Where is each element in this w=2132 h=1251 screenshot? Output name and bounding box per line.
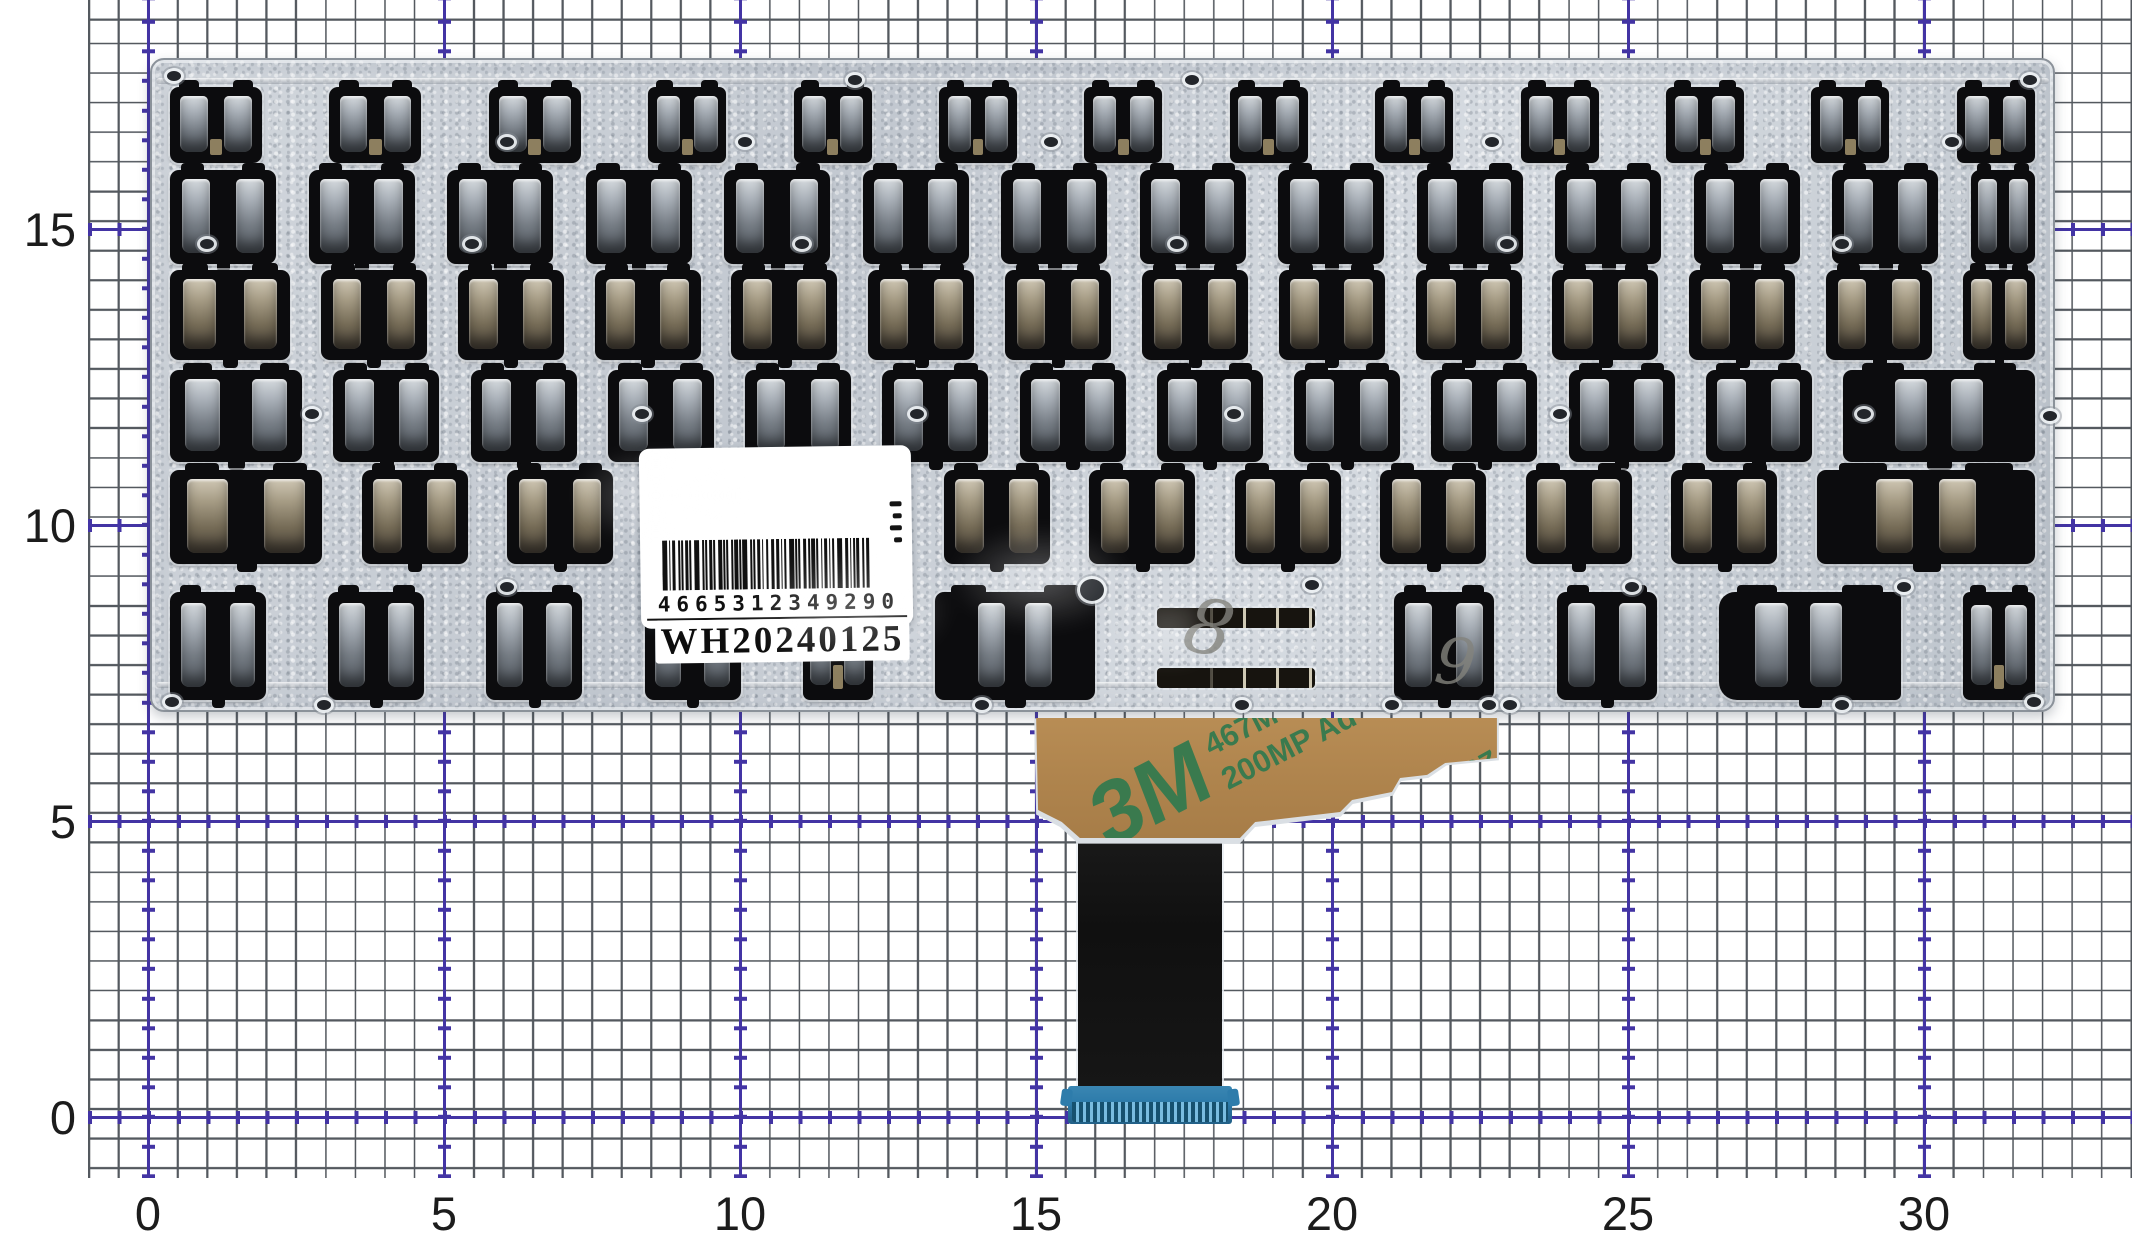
switch-clip bbox=[536, 379, 565, 451]
barcode-bar bbox=[714, 540, 716, 590]
screw-hole bbox=[500, 137, 514, 147]
screw-hole bbox=[795, 239, 809, 249]
switch-clip bbox=[597, 179, 626, 252]
key-switch-cutout bbox=[1001, 170, 1107, 264]
key-switch-cutout bbox=[1089, 470, 1195, 564]
label-side-mark bbox=[890, 525, 902, 530]
barcode-bar bbox=[672, 540, 676, 590]
switch-clip bbox=[985, 96, 1008, 152]
barcode-bar bbox=[694, 540, 700, 590]
barcode-bar bbox=[803, 539, 807, 589]
switch-notch bbox=[529, 695, 541, 708]
key-switch-cutout bbox=[328, 592, 424, 700]
key-switch-cutout bbox=[1084, 87, 1162, 163]
key-switch-cutout bbox=[731, 270, 837, 360]
switch-clip bbox=[1071, 279, 1100, 349]
switch-clip bbox=[497, 603, 523, 687]
switch-clip bbox=[660, 279, 689, 349]
switch-clip bbox=[802, 96, 825, 152]
key-switch-cutout bbox=[1666, 87, 1744, 163]
barcode-bar bbox=[734, 540, 738, 590]
key-switch-cutout bbox=[1694, 170, 1800, 264]
key-switch-cutout bbox=[794, 87, 872, 163]
switch-clip bbox=[339, 603, 365, 687]
switch-clip bbox=[1392, 479, 1421, 552]
switch-notch bbox=[370, 695, 382, 708]
key-row bbox=[170, 270, 2035, 360]
label-side-mark bbox=[894, 537, 902, 542]
key-switch-cutout bbox=[939, 87, 1017, 163]
screw-hole bbox=[1044, 137, 1058, 147]
switch-clip bbox=[236, 179, 265, 252]
switch-clip bbox=[736, 179, 765, 252]
switch-clip bbox=[1344, 279, 1373, 349]
switch-clip bbox=[373, 479, 402, 552]
x-axis-tick-label: 15 bbox=[991, 1186, 1081, 1241]
screw-hole bbox=[1185, 75, 1199, 85]
key-switch-cutout bbox=[863, 170, 969, 264]
switch-clip bbox=[427, 479, 456, 552]
barcode-bar bbox=[837, 538, 843, 588]
switch-notch bbox=[408, 559, 422, 572]
switch-clip bbox=[519, 479, 548, 552]
key-switch-cutout bbox=[1552, 270, 1658, 360]
switch-notch bbox=[1136, 559, 1150, 572]
keyboard-backplate bbox=[150, 58, 2055, 712]
x-axis-tick-label: 25 bbox=[1583, 1186, 1673, 1241]
key-switch-cutout bbox=[1719, 592, 1901, 700]
key-switch-cutout bbox=[309, 170, 415, 264]
key-switch-cutout bbox=[944, 470, 1050, 564]
key-switch-cutout bbox=[1235, 470, 1341, 564]
switch-clip bbox=[543, 96, 571, 152]
switch-notch bbox=[528, 139, 541, 156]
key-switch-cutout bbox=[1971, 170, 2035, 264]
barcode-bar bbox=[776, 539, 780, 589]
switch-clip bbox=[1238, 96, 1261, 152]
barcode-bar bbox=[669, 540, 671, 590]
key-switch-cutout bbox=[1526, 470, 1632, 564]
switch-clip bbox=[1580, 379, 1609, 451]
switch-clip bbox=[1567, 179, 1596, 252]
switch-clip bbox=[1755, 279, 1784, 349]
key-switch-cutout bbox=[1278, 170, 1384, 264]
switch-clip bbox=[1446, 479, 1475, 552]
switch-notch bbox=[1601, 695, 1614, 708]
switch-clip bbox=[1427, 279, 1456, 349]
key-switch-cutout bbox=[333, 370, 439, 462]
barcode-bar bbox=[731, 540, 733, 590]
switch-clip bbox=[757, 379, 786, 451]
switch-clip bbox=[1276, 96, 1299, 152]
screw-hole bbox=[167, 71, 181, 81]
switch-notch bbox=[1572, 559, 1586, 572]
switch-clip bbox=[1971, 279, 1993, 349]
key-switch-cutout bbox=[724, 170, 830, 264]
switch-notch bbox=[1052, 355, 1066, 368]
switch-clip bbox=[1384, 96, 1407, 152]
switch-clip bbox=[1592, 479, 1621, 552]
screw-hole bbox=[1227, 409, 1241, 419]
key-switch-cutout bbox=[362, 470, 468, 564]
switch-clip bbox=[1895, 379, 1928, 451]
serial-number: WH20240125 bbox=[649, 617, 916, 664]
switch-notch bbox=[237, 559, 257, 572]
x-axis-tick-label: 10 bbox=[695, 1186, 785, 1241]
switch-clip bbox=[955, 479, 984, 552]
barcode-bar bbox=[705, 540, 707, 590]
barcode-bar bbox=[723, 540, 725, 590]
screw-hole bbox=[200, 239, 214, 249]
switch-notch bbox=[641, 355, 655, 368]
product-photo-scene: 051015202530051015 8 9 3M 467M 200MP Ad … bbox=[0, 0, 2132, 1251]
key-switch-cutout bbox=[1826, 270, 1932, 360]
switch-clip bbox=[546, 603, 572, 687]
switch-clip bbox=[928, 179, 957, 252]
screw-hole bbox=[305, 409, 319, 419]
switch-notch bbox=[1994, 665, 2004, 689]
key-switch-cutout bbox=[170, 270, 290, 360]
label-side-mark bbox=[893, 513, 902, 518]
switch-clip bbox=[694, 96, 717, 152]
key-switch-cutout bbox=[1963, 270, 2035, 360]
switch-notch bbox=[915, 355, 929, 368]
switch-clip bbox=[1025, 603, 1052, 687]
switch-notch bbox=[682, 139, 693, 156]
switch-clip bbox=[1717, 379, 1746, 451]
switch-notch bbox=[1066, 457, 1080, 470]
x-axis-tick-label: 30 bbox=[1879, 1186, 1969, 1241]
switch-clip bbox=[2009, 179, 2028, 252]
screw-hole bbox=[1945, 137, 1959, 147]
switch-clip bbox=[1205, 179, 1234, 252]
switch-clip bbox=[1155, 479, 1184, 552]
key-switch-cutout bbox=[1375, 87, 1453, 163]
barcode-bar bbox=[845, 538, 849, 588]
switch-clip bbox=[874, 179, 903, 252]
barcode-bar bbox=[789, 539, 795, 589]
y-axis-tick-label: 10 bbox=[6, 498, 76, 553]
screw-hole bbox=[1170, 239, 1184, 249]
switch-clip bbox=[651, 179, 680, 252]
switch-notch bbox=[1718, 559, 1732, 572]
screw-hole bbox=[1482, 700, 1496, 710]
screw-hole bbox=[1835, 239, 1849, 249]
key-switch-cutout bbox=[648, 87, 726, 163]
barcode-bar bbox=[726, 540, 728, 590]
switch-clip bbox=[1701, 279, 1730, 349]
key-switch-cutout bbox=[329, 87, 421, 163]
barcode-bar bbox=[816, 538, 818, 588]
switch-notch bbox=[367, 355, 381, 368]
barcode-label: 4665312349290 WH20240125 bbox=[639, 445, 913, 629]
barcode-bar bbox=[754, 539, 756, 589]
key-switch-cutout bbox=[1817, 470, 2035, 564]
switch-clip bbox=[880, 279, 909, 349]
y-axis-tick-label: 5 bbox=[6, 794, 76, 849]
switch-clip bbox=[523, 279, 552, 349]
switch-notch bbox=[1700, 139, 1711, 156]
switch-clip bbox=[1892, 279, 1921, 349]
barcode-bar bbox=[829, 538, 831, 588]
switch-notch bbox=[1409, 139, 1420, 156]
switch-clip bbox=[1443, 379, 1472, 451]
switch-clip bbox=[978, 603, 1005, 687]
barcode-bar bbox=[821, 538, 823, 588]
switch-clip bbox=[1978, 179, 1997, 252]
key-switch-cutout bbox=[595, 270, 701, 360]
switch-clip bbox=[183, 279, 215, 349]
key-switch-cutout bbox=[1416, 270, 1522, 360]
switch-clip bbox=[1838, 279, 1867, 349]
barcode-bar bbox=[681, 540, 683, 590]
ribbon-cable bbox=[1078, 820, 1222, 1092]
switch-clip bbox=[1737, 479, 1766, 552]
screw-hole bbox=[2023, 75, 2037, 85]
key-switch-cutout bbox=[586, 170, 692, 264]
switch-notch bbox=[369, 139, 382, 156]
key-row bbox=[170, 170, 2035, 264]
barcode-bar bbox=[718, 540, 722, 590]
screw-hole bbox=[975, 700, 989, 710]
switch-clip bbox=[320, 179, 349, 252]
switch-clip bbox=[2005, 605, 2027, 685]
key-switch-cutout bbox=[1521, 87, 1599, 163]
switch-clip bbox=[1300, 479, 1329, 552]
switch-notch bbox=[1845, 139, 1856, 156]
switch-notch bbox=[687, 695, 699, 708]
switch-clip bbox=[1619, 603, 1646, 687]
switch-clip bbox=[1405, 603, 1432, 687]
switch-notch bbox=[833, 665, 843, 689]
switch-clip bbox=[840, 96, 863, 152]
screw-hole bbox=[165, 697, 179, 707]
switch-clip bbox=[230, 603, 256, 687]
switch-clip bbox=[1712, 96, 1735, 152]
barcode-bar bbox=[832, 538, 834, 588]
key-switch-cutout bbox=[1417, 170, 1523, 264]
key-row bbox=[170, 370, 2035, 462]
barcode-number: 4665312349290 bbox=[655, 589, 903, 616]
switch-notch bbox=[212, 695, 224, 708]
switch-notch bbox=[1203, 457, 1217, 470]
barcode-bar bbox=[771, 539, 775, 589]
key-row bbox=[170, 87, 2035, 163]
switch-clip bbox=[797, 279, 826, 349]
switch-clip bbox=[1755, 603, 1788, 687]
switch-notch bbox=[554, 559, 568, 572]
switch-clip bbox=[2003, 96, 2026, 152]
switch-clip bbox=[606, 279, 635, 349]
key-switch-cutout bbox=[1555, 170, 1661, 264]
switch-clip bbox=[1771, 379, 1800, 451]
key-switch-cutout bbox=[447, 170, 553, 264]
switch-clip bbox=[1130, 96, 1153, 152]
key-switch-cutout bbox=[1832, 170, 1938, 264]
barcode-bar bbox=[811, 538, 815, 588]
switch-clip bbox=[482, 379, 511, 451]
switch-clip bbox=[573, 479, 602, 552]
switch-clip bbox=[244, 279, 276, 349]
switch-clip bbox=[1537, 479, 1566, 552]
cable-connector bbox=[1068, 1086, 1232, 1124]
key-switch-cutout bbox=[1140, 170, 1246, 264]
key-switch-cutout bbox=[507, 470, 613, 564]
switch-clip bbox=[180, 96, 208, 152]
key-switch-cutout bbox=[489, 87, 581, 163]
switch-clip bbox=[1481, 279, 1510, 349]
switch-clip bbox=[1013, 179, 1042, 252]
barcode-bar bbox=[798, 539, 800, 589]
switch-clip bbox=[181, 603, 207, 687]
switch-notch bbox=[1118, 139, 1129, 156]
x-axis-tick-label: 20 bbox=[1287, 1186, 1377, 1241]
switch-notch bbox=[929, 457, 943, 470]
switch-clip bbox=[1939, 479, 1976, 552]
barcode-bar bbox=[824, 538, 828, 588]
screw-hole bbox=[317, 700, 331, 710]
screw-hole bbox=[1385, 700, 1399, 710]
switch-clip bbox=[1009, 479, 1038, 552]
switch-notch bbox=[1913, 559, 1941, 572]
switch-clip bbox=[333, 279, 362, 349]
key-row bbox=[170, 470, 2035, 564]
switch-clip bbox=[387, 279, 416, 349]
screw-hole bbox=[635, 409, 649, 419]
barcode-bar bbox=[750, 539, 752, 589]
barcode-bar bbox=[766, 539, 768, 589]
switch-clip bbox=[388, 603, 414, 687]
switch-clip bbox=[1567, 96, 1590, 152]
connector-contacts bbox=[1072, 1102, 1228, 1122]
switch-clip bbox=[374, 179, 403, 252]
switch-notch bbox=[827, 139, 838, 156]
switch-clip bbox=[1085, 379, 1114, 451]
switch-clip bbox=[1421, 96, 1444, 152]
switch-clip bbox=[340, 96, 368, 152]
screw-hole bbox=[1305, 580, 1319, 590]
switch-clip bbox=[657, 96, 680, 152]
screw-hole bbox=[1857, 409, 1871, 419]
switch-notch bbox=[1427, 559, 1441, 572]
switch-clip bbox=[811, 379, 840, 451]
screw-hole bbox=[1485, 137, 1499, 147]
switch-clip bbox=[934, 279, 963, 349]
switch-clip bbox=[1876, 479, 1913, 552]
screw-hole bbox=[1500, 239, 1514, 249]
x-axis-tick-label: 5 bbox=[399, 1186, 489, 1241]
key-switch-cutout bbox=[1569, 370, 1675, 462]
switch-clip bbox=[673, 379, 702, 451]
switch-clip bbox=[1898, 179, 1927, 252]
key-switch-cutout bbox=[1963, 592, 2035, 700]
y-axis-tick-label: 0 bbox=[6, 1090, 76, 1145]
barcode-bar bbox=[685, 540, 689, 590]
screw-hole bbox=[910, 409, 924, 419]
switch-clip bbox=[1810, 603, 1843, 687]
barcode-bar bbox=[702, 540, 704, 590]
screw-hole bbox=[1625, 582, 1639, 592]
key-switch-cutout bbox=[1157, 370, 1263, 462]
switch-clip bbox=[185, 379, 221, 451]
key-switch-cutout bbox=[1005, 270, 1111, 360]
switch-notch bbox=[990, 559, 1004, 572]
barcode-bar bbox=[795, 539, 797, 589]
barcode-bar bbox=[850, 538, 852, 588]
screw-hole bbox=[1553, 409, 1567, 419]
screw-hole bbox=[1897, 582, 1911, 592]
barcode bbox=[662, 537, 891, 590]
screw-hole bbox=[1835, 700, 1849, 710]
key-switch-cutout bbox=[868, 270, 974, 360]
key-switch-cutout bbox=[321, 270, 427, 360]
y-axis-tick-label: 15 bbox=[6, 202, 76, 257]
key-switch-cutout bbox=[1957, 87, 2035, 163]
switch-clip bbox=[1093, 96, 1116, 152]
key-switch-cutout bbox=[1689, 270, 1795, 360]
switch-clip bbox=[345, 379, 374, 451]
x-axis-tick-label: 0 bbox=[103, 1186, 193, 1241]
screw-hole bbox=[2027, 697, 2041, 707]
key-row bbox=[170, 592, 2035, 700]
key-switch-cutout bbox=[1279, 270, 1385, 360]
switch-notch bbox=[223, 355, 239, 368]
switch-clip bbox=[1820, 96, 1843, 152]
switch-clip bbox=[948, 96, 971, 152]
switch-clip bbox=[1208, 279, 1237, 349]
screw-hole bbox=[1503, 700, 1517, 710]
switch-notch bbox=[1478, 457, 1492, 470]
switch-clip bbox=[1290, 279, 1319, 349]
cable-trace-bar bbox=[1157, 668, 1315, 688]
switch-clip bbox=[264, 479, 305, 552]
barcode-bar bbox=[866, 538, 870, 588]
switch-clip bbox=[1101, 479, 1130, 552]
switch-notch bbox=[778, 355, 792, 368]
pencil-mark: 9 bbox=[1431, 624, 1479, 702]
key-switch-cutout bbox=[458, 270, 564, 360]
key-switch-cutout bbox=[1671, 470, 1777, 564]
switch-notch bbox=[210, 139, 223, 156]
barcode-bar bbox=[689, 540, 691, 590]
switch-notch bbox=[1005, 695, 1026, 708]
key-switch-cutout bbox=[1142, 270, 1248, 360]
key-switch-cutout bbox=[935, 592, 1095, 700]
switch-clip bbox=[1634, 379, 1663, 451]
switch-notch bbox=[1341, 457, 1355, 470]
switch-notch bbox=[1281, 559, 1295, 572]
plate-hole bbox=[1080, 579, 1104, 601]
switch-clip bbox=[1290, 179, 1319, 252]
switch-clip bbox=[1017, 279, 1046, 349]
switch-notch bbox=[1799, 695, 1823, 708]
barcode-bar bbox=[784, 539, 786, 589]
switch-notch bbox=[1990, 139, 2001, 156]
switch-clip bbox=[252, 379, 288, 451]
switch-notch bbox=[973, 139, 984, 156]
switch-clip bbox=[399, 379, 428, 451]
barcode-bar bbox=[742, 539, 748, 589]
switch-clip bbox=[1971, 605, 1993, 685]
switch-clip bbox=[1621, 179, 1650, 252]
switch-clip bbox=[187, 479, 228, 552]
switch-clip bbox=[1497, 379, 1526, 451]
switch-clip bbox=[1965, 96, 1988, 152]
switch-clip bbox=[1564, 279, 1593, 349]
key-switch-cutout bbox=[1811, 87, 1889, 163]
switch-clip bbox=[384, 96, 412, 152]
screw-hole bbox=[848, 75, 862, 85]
